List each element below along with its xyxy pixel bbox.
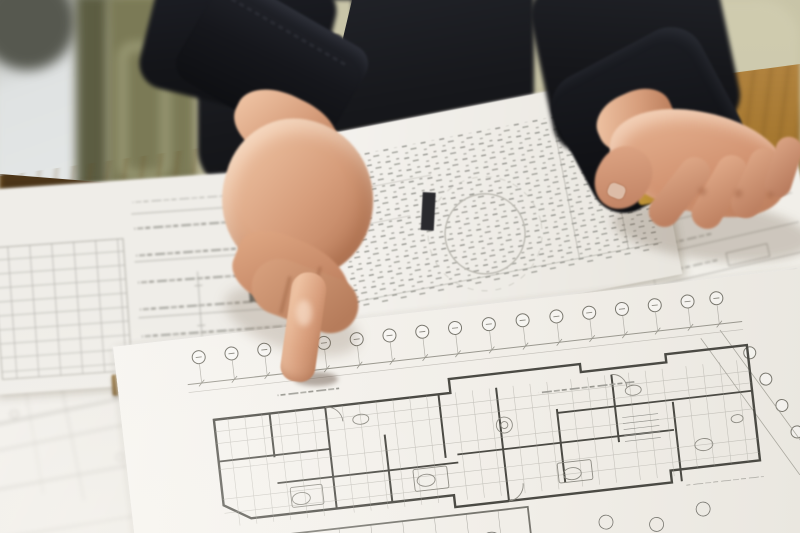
partitions — [214, 359, 761, 527]
photo-of-hands-over-blueprints — [0, 0, 800, 533]
stair-hatch — [622, 414, 660, 442]
index-finger-knuckle-shine — [296, 300, 312, 326]
dimension-lines — [187, 312, 800, 533]
